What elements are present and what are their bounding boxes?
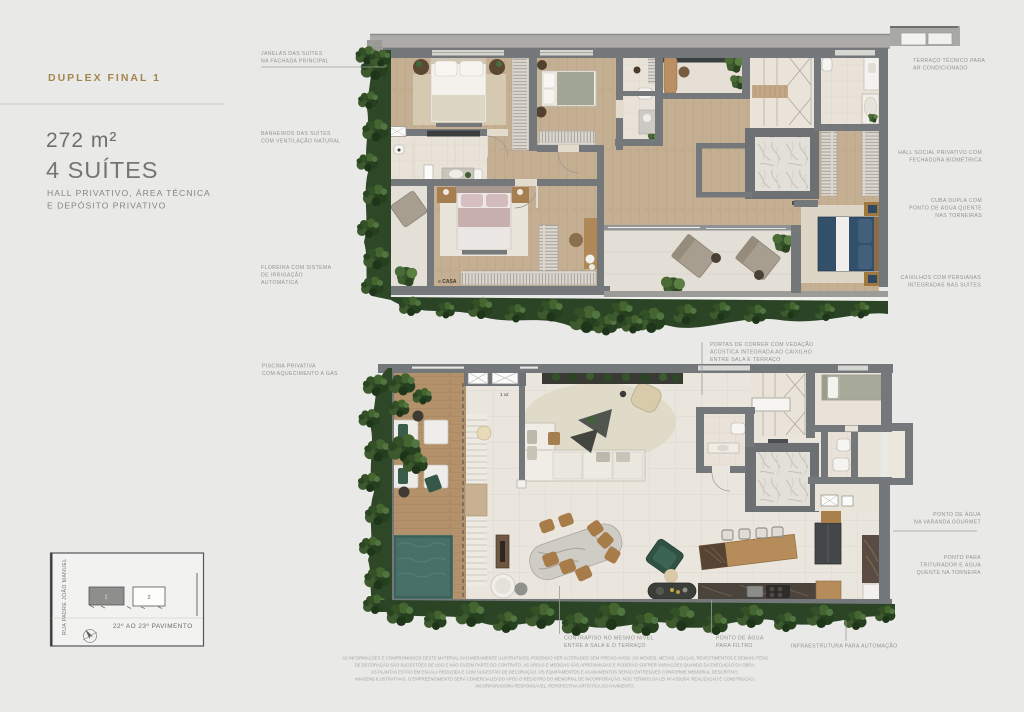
svg-text:DE DECORAÇÃO SÃO SUGESTÕES DE: DE DECORAÇÃO SÃO SUGESTÕES DE USO E NÃO … xyxy=(355,663,756,668)
svg-text:E DEPÓSITO PRIVATIVO: E DEPÓSITO PRIVATIVO xyxy=(47,201,166,211)
svg-text:272 m²: 272 m² xyxy=(46,129,117,152)
svg-text:INFRAESTRUTURA PARA AUTOMAÇÃO: INFRAESTRUTURA PARA AUTOMAÇÃO xyxy=(791,643,898,650)
svg-text:1 v2: 1 v2 xyxy=(500,392,509,397)
svg-text:INCORPORADORA RESPONSÁVEL. PER: INCORPORADORA RESPONSÁVEL. PERSPECTIVA A… xyxy=(475,684,634,689)
svg-text:DUPLEX FINAL 1: DUPLEX FINAL 1 xyxy=(48,72,161,84)
svg-text:NA VARANDA GOURMET: NA VARANDA GOURMET xyxy=(914,520,982,526)
svg-text:JANELAS DAS SUÍTES: JANELAS DAS SUÍTES xyxy=(261,50,323,57)
svg-text:AUTOMÁTICA: AUTOMÁTICA xyxy=(261,279,299,286)
svg-text:ENTRE A SALA E O TERRAÇO: ENTRE A SALA E O TERRAÇO xyxy=(564,643,646,649)
svg-text:HALL PRIVATIVO, ÁREA TÉCNICA: HALL PRIVATIVO, ÁREA TÉCNICA xyxy=(47,188,211,198)
svg-text:22º AO 23º PAVIMENTO: 22º AO 23º PAVIMENTO xyxy=(113,623,193,630)
svg-text:FLOREIRA COM SISTEMA: FLOREIRA COM SISTEMA xyxy=(261,265,332,271)
svg-text:1: 1 xyxy=(104,595,107,601)
svg-text:BANHEIROS DAS SUÍTES: BANHEIROS DAS SUÍTES xyxy=(261,130,331,137)
svg-text:ACÚSTICA INTEGRADA AO CAIXILHO: ACÚSTICA INTEGRADA AO CAIXILHO xyxy=(710,349,812,356)
svg-text:PONTO DE ÁGUA: PONTO DE ÁGUA xyxy=(716,635,764,642)
svg-text:INTEGRADAS NAS SUÍTES: INTEGRADAS NAS SUÍTES xyxy=(908,282,982,289)
svg-text:NA FACHADA PRINCIPAL: NA FACHADA PRINCIPAL xyxy=(261,59,329,65)
svg-text:CUBA DUPLA COM: CUBA DUPLA COM xyxy=(931,198,982,204)
svg-text:ENTRE SALA E TERRAÇO: ENTRE SALA E TERRAÇO xyxy=(710,357,781,363)
svg-text:FECHADURA BIOMÉTRICA: FECHADURA BIOMÉTRICA xyxy=(909,157,982,164)
svg-text:PONTO PARA: PONTO PARA xyxy=(944,555,981,561)
svg-text:COM VENTILAÇÃO NATURAL: COM VENTILAÇÃO NATURAL xyxy=(261,138,340,145)
svg-text:TERRAÇO TÉCNICO PARA: TERRAÇO TÉCNICO PARA xyxy=(913,57,985,64)
svg-text:≡ CASA: ≡ CASA xyxy=(438,279,457,285)
svg-text:PARA FILTRO: PARA FILTRO xyxy=(716,643,753,649)
svg-text:PONTO DE ÁGUA QUENTE: PONTO DE ÁGUA QUENTE xyxy=(909,205,982,212)
svg-text:NAS TORNEIRAS: NAS TORNEIRAS xyxy=(935,213,982,219)
svg-text:TRITURADOR E ÁGUA: TRITURADOR E ÁGUA xyxy=(920,562,981,569)
svg-text:COM AQUECIMENTO A GÁS: COM AQUECIMENTO A GÁS xyxy=(262,370,338,377)
svg-text:AR CONDICIONADO: AR CONDICIONADO xyxy=(913,66,968,72)
svg-text:CONTRAPISO NO MESMO NÍVEL: CONTRAPISO NO MESMO NÍVEL xyxy=(564,635,654,642)
svg-text:HALL SOCIAL PRIVATIVO COM: HALL SOCIAL PRIVATIVO COM xyxy=(898,150,982,156)
svg-text:QUENTE NA TORNEIRA: QUENTE NA TORNEIRA xyxy=(917,570,982,576)
svg-text:PONTO DE ÁGUA: PONTO DE ÁGUA xyxy=(933,511,981,518)
svg-text:RUA PADRE JOÃO MANUEL: RUA PADRE JOÃO MANUEL xyxy=(61,558,68,635)
svg-text:IMAGENS ILUSTRATIVAS. O EMPREE: IMAGENS ILUSTRATIVAS. O EMPREENDIMENTO S… xyxy=(355,677,755,682)
svg-text:DE IRRIGAÇÃO: DE IRRIGAÇÃO xyxy=(261,272,303,279)
svg-text:4 SUÍTES: 4 SUÍTES xyxy=(46,157,158,183)
svg-text:AS INFORMAÇÕES E COMPROMISSOS: AS INFORMAÇÕES E COMPROMISSOS DESTE MATE… xyxy=(342,656,768,661)
svg-text:PISCINA PRIVATIVA: PISCINA PRIVATIVA xyxy=(262,364,316,370)
svg-text:CAIXILHOS COM PERSIANAS: CAIXILHOS COM PERSIANAS xyxy=(901,275,982,281)
svg-text:PORTAS DE CORRER COM VEDAÇÃO: PORTAS DE CORRER COM VEDAÇÃO xyxy=(710,341,814,348)
svg-text:AS PLANTAS ESTÃO EM ESCALA RED: AS PLANTAS ESTÃO EM ESCALA REDUZIDA E CO… xyxy=(371,670,739,675)
svg-text:2: 2 xyxy=(147,595,150,601)
